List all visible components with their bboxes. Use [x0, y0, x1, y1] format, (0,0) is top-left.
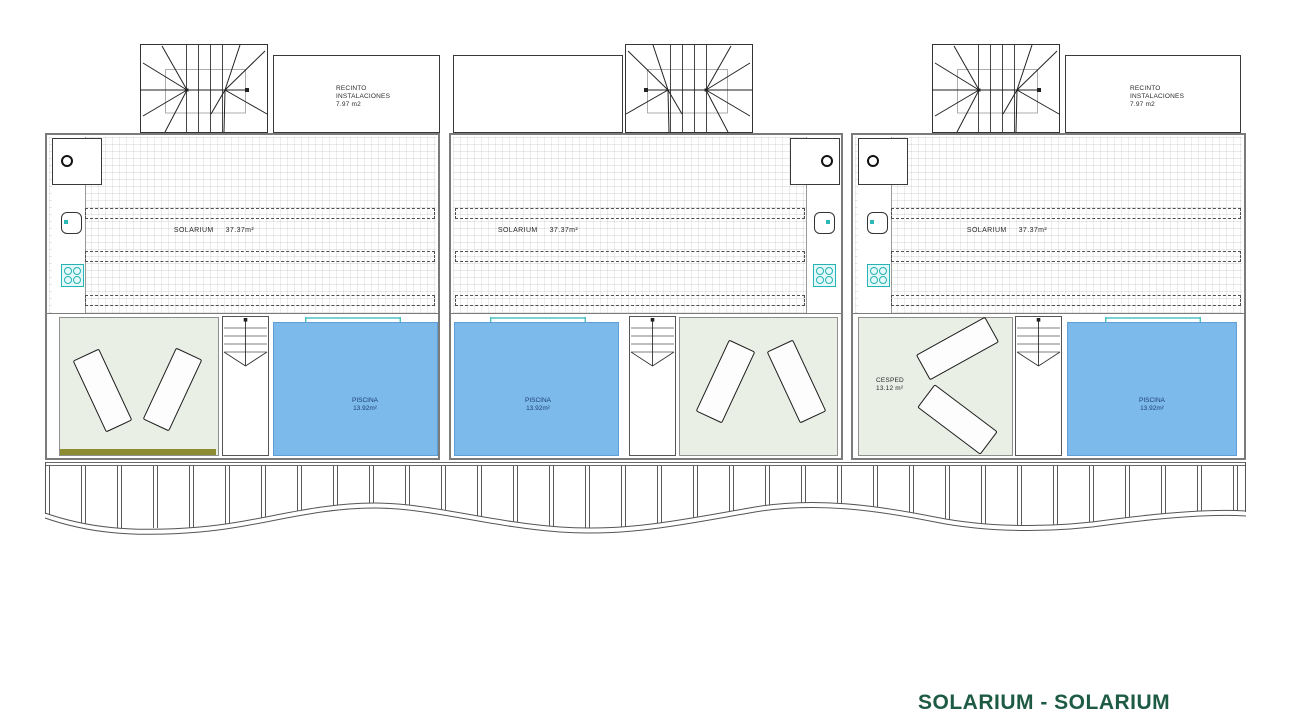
solarium-floor	[855, 137, 1242, 313]
solarium-floor	[453, 137, 839, 313]
terrace-stair	[629, 316, 676, 456]
recinto-label-line1: RECINTO	[1130, 85, 1184, 93]
sink-icon	[814, 212, 835, 234]
burner-icon	[867, 155, 879, 167]
main-stairs	[140, 44, 268, 133]
solarium-area: 37.37m²	[1019, 227, 1047, 235]
pergola-beam	[85, 251, 435, 262]
terrace-stair-drawing	[630, 317, 675, 455]
lawn-name: CESPED	[876, 377, 904, 385]
pool-area: 13.92m²	[498, 405, 578, 413]
pool-cover-bracket	[305, 317, 401, 323]
sink-drain-icon	[64, 220, 68, 224]
pool-cover-bracket	[1105, 317, 1201, 323]
bbq-icon	[813, 264, 836, 287]
pool-label: PISCINA 13.92m²	[325, 397, 405, 413]
main-stairs	[625, 44, 753, 133]
recinto-label: RECINTO INSTALACIONES 7.97 m2	[336, 85, 390, 109]
recinto-label-line2: INSTALACIONES	[1130, 93, 1184, 101]
pool-label: PISCINA 13.92m²	[1112, 397, 1192, 413]
sink-drain-icon	[826, 220, 830, 224]
pool-area: 13.92m²	[1112, 405, 1192, 413]
pool-name: PISCINA	[1112, 397, 1192, 405]
plan-title: SOLARIUM - SOLARIUM	[918, 691, 1170, 715]
solarium-terrace-divider	[451, 313, 841, 314]
solarium-name: SOLARIUM	[498, 227, 538, 235]
solarium-area: 37.37m²	[226, 227, 254, 235]
counter-box	[858, 138, 908, 185]
recinto-area: 7.97 m2	[1130, 101, 1184, 109]
pergola-beam	[455, 295, 805, 306]
solarium-label: SOLARIUM 37.37m²	[154, 227, 274, 235]
recinto-instalaciones	[453, 55, 623, 133]
recinto-label-line1: RECINTO	[336, 85, 390, 93]
planter-strip	[60, 449, 216, 455]
counter-box	[52, 138, 102, 185]
pool-name: PISCINA	[325, 397, 405, 405]
solarium-floor	[49, 137, 436, 313]
lawn-area: 13.12 m²	[876, 385, 904, 393]
pool	[454, 322, 619, 456]
solarium-name: SOLARIUM	[174, 227, 214, 235]
lawn-label: CESPED 13.12 m²	[876, 377, 904, 393]
burner-icon	[821, 155, 833, 167]
pergola-beam	[455, 208, 805, 219]
sink-drain-icon	[870, 220, 874, 224]
recinto-label: RECINTO INSTALACIONES 7.97 m2	[1130, 85, 1184, 109]
pergola-beam	[85, 295, 435, 306]
recinto-area: 7.97 m2	[336, 101, 390, 109]
solarium-area: 37.37m²	[550, 227, 578, 235]
pool-name: PISCINA	[498, 397, 578, 405]
burner-icon	[61, 155, 73, 167]
pergola-beam	[891, 208, 1241, 219]
terrain-wave-drawing	[43, 460, 1249, 538]
recinto-label-line2: INSTALACIONES	[336, 93, 390, 101]
terrace-stair	[1015, 316, 1062, 456]
stairs-drawing	[625, 44, 753, 133]
terrace-stair-drawing	[1016, 317, 1061, 455]
solarium-label: SOLARIUM 37.37m²	[478, 227, 598, 235]
pool	[1067, 322, 1237, 456]
floor-plan: RECINTO INSTALACIONES 7.97 m2 SOLARIUM 3…	[0, 0, 1290, 727]
pergola-beam	[455, 251, 805, 262]
pool	[273, 322, 438, 456]
terrace-stair	[222, 316, 269, 456]
pergola-beam	[891, 251, 1241, 262]
stairs-drawing	[932, 44, 1060, 133]
pergola-beam	[891, 295, 1241, 306]
solarium-name: SOLARIUM	[967, 227, 1007, 235]
terrace-stair-drawing	[223, 317, 268, 455]
bbq-icon	[61, 264, 84, 287]
pergola-beam	[85, 208, 435, 219]
stairs-drawing	[140, 44, 268, 133]
pool-area: 13.92m²	[325, 405, 405, 413]
pool-cover-bracket	[490, 317, 586, 323]
bbq-icon	[867, 264, 890, 287]
solarium-terrace-divider	[47, 313, 438, 314]
lawn	[59, 317, 219, 456]
pool-label: PISCINA 13.92m²	[498, 397, 578, 413]
main-stairs	[932, 44, 1060, 133]
fence-terrain	[43, 460, 1249, 538]
solarium-terrace-divider	[853, 313, 1244, 314]
solarium-label: SOLARIUM 37.37m²	[947, 227, 1067, 235]
